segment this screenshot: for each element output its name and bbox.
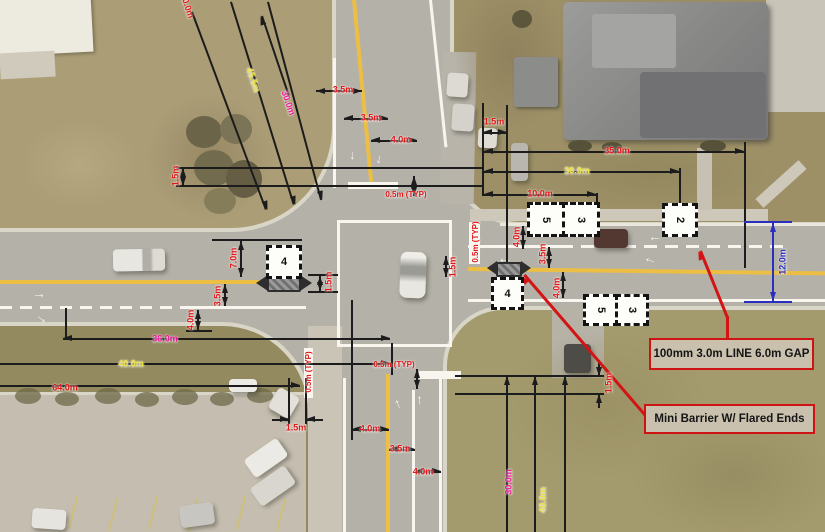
callout-mini-barrier-text: Mini Barrier W/ Flared Ends bbox=[654, 413, 804, 425]
marker-box-3-north: 3 bbox=[562, 202, 600, 237]
arrowhead-blue bbox=[770, 223, 776, 232]
dim-line bbox=[176, 185, 483, 187]
dim-label: 0.5m (TYP) bbox=[373, 361, 414, 369]
tree-shadow bbox=[15, 388, 41, 404]
leader-line-dashed-gap bbox=[726, 316, 729, 340]
arrowhead bbox=[596, 367, 602, 376]
dim-line bbox=[564, 376, 566, 532]
edge-line-north-west bbox=[333, 58, 336, 188]
dim-label: 4.0m bbox=[413, 468, 434, 477]
callout-mini-barrier: Mini Barrier W/ Flared Ends bbox=[644, 404, 815, 434]
dim-line-blue bbox=[772, 222, 774, 302]
tree bbox=[204, 188, 236, 214]
dim-label: 10.0m bbox=[527, 190, 553, 199]
dim-label: 1.5m bbox=[286, 424, 307, 433]
dim-label: 4.0m bbox=[360, 425, 381, 434]
arrowhead bbox=[344, 115, 353, 121]
car-parking-lot bbox=[179, 502, 216, 529]
dim-line bbox=[534, 376, 536, 532]
dim-label: 40.0m bbox=[118, 360, 144, 369]
arrowhead bbox=[670, 168, 679, 174]
dim-line bbox=[176, 167, 483, 169]
dim-label: 0.5m (TYP) bbox=[305, 351, 313, 392]
arrowhead bbox=[562, 376, 568, 385]
edge-line-south-east bbox=[439, 378, 442, 532]
dim-label: 1.5m bbox=[605, 373, 614, 394]
arrowhead bbox=[411, 176, 417, 185]
dim-label: 1.5m bbox=[172, 166, 181, 187]
dim-label: 40.0m bbox=[539, 487, 548, 513]
grass-mottle bbox=[20, 120, 140, 210]
tree-shadow bbox=[172, 389, 198, 405]
edge-line-south-west bbox=[343, 378, 346, 532]
dim-line bbox=[391, 343, 393, 375]
marker-label: 4 bbox=[281, 256, 287, 268]
tree-shadow bbox=[210, 392, 234, 406]
marker-label: 5 bbox=[595, 307, 607, 313]
lane-line-west-solid bbox=[186, 306, 306, 309]
mini-barrier-east bbox=[496, 262, 522, 277]
bush bbox=[512, 10, 532, 28]
pavement-arrow-south: ↓ bbox=[375, 151, 384, 165]
intersection-keep-clear-box bbox=[337, 220, 452, 347]
dim-line bbox=[455, 375, 604, 377]
dim-label: 64.0m bbox=[52, 384, 78, 393]
arrowhead bbox=[316, 190, 324, 200]
dim-line bbox=[63, 338, 390, 340]
marker-box-4-east: 4 bbox=[491, 277, 524, 310]
dim-label: 30.0m bbox=[564, 167, 590, 176]
lane-line-west-dashed bbox=[0, 306, 188, 309]
garage-roof bbox=[514, 57, 558, 107]
arrowhead bbox=[504, 376, 510, 385]
dim-line bbox=[0, 363, 390, 365]
arrowhead bbox=[316, 88, 325, 94]
dim-line bbox=[455, 393, 604, 395]
dim-label: 12.0m bbox=[779, 249, 788, 275]
marker-box-2-north: 2 bbox=[662, 203, 698, 237]
arrowhead bbox=[381, 335, 390, 341]
tree bbox=[186, 116, 222, 148]
arrowhead bbox=[414, 380, 420, 389]
arrowhead bbox=[483, 129, 492, 135]
dim-label: 3.5m bbox=[390, 445, 411, 454]
arrowhead bbox=[317, 282, 323, 291]
dim-label: 30.0m bbox=[505, 469, 514, 495]
dim-line bbox=[351, 300, 353, 440]
dim-label: 35.0m bbox=[604, 147, 630, 156]
pavement-arrow-south: ↓ bbox=[349, 148, 356, 161]
marker-label: 2 bbox=[674, 217, 686, 223]
dim-line-blue bbox=[744, 301, 792, 303]
arrowhead bbox=[63, 335, 72, 341]
dim-line bbox=[212, 239, 302, 241]
mini-barrier-east-flare-right bbox=[521, 261, 531, 275]
arrowhead bbox=[238, 268, 244, 277]
building-roof bbox=[0, 0, 94, 56]
tree-shadow bbox=[135, 392, 159, 407]
marker-box-3-south: 3 bbox=[615, 294, 649, 326]
lane-line-south bbox=[412, 390, 415, 532]
arrowhead bbox=[484, 191, 493, 197]
tree-shadow bbox=[95, 388, 121, 404]
arrowhead bbox=[380, 426, 389, 432]
dim-label: 1.5m bbox=[449, 257, 458, 278]
pavement-arrow-east: → bbox=[32, 286, 46, 300]
pavement-arrow-north: ↑ bbox=[416, 392, 423, 406]
arrowhead bbox=[291, 382, 300, 388]
dim-line bbox=[744, 142, 746, 268]
dim-label: 3.5m bbox=[539, 244, 548, 265]
van-parked bbox=[451, 103, 475, 131]
dim-label: 0.5m (TYP) bbox=[472, 221, 480, 262]
marker-box-5-north: 5 bbox=[527, 202, 565, 237]
arrowhead bbox=[280, 416, 289, 422]
dim-label: 0.5m (TYP) bbox=[385, 191, 426, 199]
arrowhead bbox=[735, 148, 744, 154]
mini-barrier-east-flare-left bbox=[487, 261, 497, 275]
gutter-strip bbox=[308, 326, 342, 532]
driveway bbox=[766, 0, 825, 112]
marker-label: 4 bbox=[504, 288, 510, 300]
pickup-truck-west bbox=[113, 249, 165, 272]
dim-label: 1.5m bbox=[484, 118, 505, 127]
arrowhead bbox=[484, 168, 493, 174]
dim-label: 4.0m bbox=[513, 227, 522, 248]
dim-label: 3.5m bbox=[361, 114, 382, 123]
pavement-arrow-west-turn: ← bbox=[642, 249, 660, 267]
trailer-parked bbox=[511, 143, 528, 181]
arrowhead bbox=[414, 369, 420, 378]
marker-box-4-west: 4 bbox=[266, 245, 302, 279]
arrowhead bbox=[371, 137, 380, 143]
dim-line-blue bbox=[744, 221, 792, 223]
dim-label: 3.5m bbox=[333, 86, 354, 95]
dim-label: 4.0m bbox=[391, 136, 412, 145]
pavement-arrow-west: ← bbox=[648, 229, 662, 243]
arrowhead bbox=[498, 129, 507, 135]
arrowhead bbox=[596, 394, 602, 403]
house-roof-gable bbox=[592, 14, 676, 68]
dim-line bbox=[506, 376, 508, 532]
arrowhead bbox=[587, 191, 596, 197]
arrowhead bbox=[353, 88, 362, 94]
arrowhead bbox=[306, 416, 315, 422]
car-parking-lot bbox=[31, 508, 66, 530]
dim-label: 1.5m bbox=[325, 272, 334, 293]
dim-label: 3.5m bbox=[214, 286, 223, 307]
callout-line-spec: 100mm 3.0m LINE 6.0m GAP bbox=[649, 338, 814, 370]
building-pad bbox=[0, 51, 56, 80]
dim-label: 7.0m bbox=[230, 248, 239, 269]
leader-arrowhead bbox=[695, 250, 704, 261]
dim-line bbox=[0, 385, 300, 387]
arrowhead bbox=[532, 376, 538, 385]
marker-label: 3 bbox=[626, 307, 638, 313]
marker-label: 5 bbox=[540, 216, 552, 222]
house-roof-wing bbox=[640, 72, 766, 138]
van-parked bbox=[446, 72, 469, 97]
car-in-intersection bbox=[399, 252, 427, 299]
dim-line bbox=[679, 168, 681, 206]
aerial-intersection-plan: → → ↓ ↓ ← ← ← ↑ ↑ 4 4 5 3 5 3 2 bbox=[0, 0, 825, 532]
front-walk bbox=[697, 148, 712, 210]
dim-label: 4.0m bbox=[187, 310, 196, 331]
marker-label: 3 bbox=[575, 216, 587, 222]
pavement-arrow-north-turn: ↑ bbox=[392, 395, 404, 411]
arrowhead bbox=[484, 148, 493, 154]
arrowhead-blue bbox=[770, 292, 776, 301]
dim-label: 36.0m bbox=[152, 335, 178, 344]
tree-shadow bbox=[55, 392, 79, 406]
sidewalk bbox=[470, 209, 768, 221]
dim-label: 4.0m bbox=[553, 278, 562, 299]
callout-line-spec-text: 100mm 3.0m LINE 6.0m GAP bbox=[654, 348, 810, 360]
marker-box-5-south: 5 bbox=[583, 294, 619, 326]
